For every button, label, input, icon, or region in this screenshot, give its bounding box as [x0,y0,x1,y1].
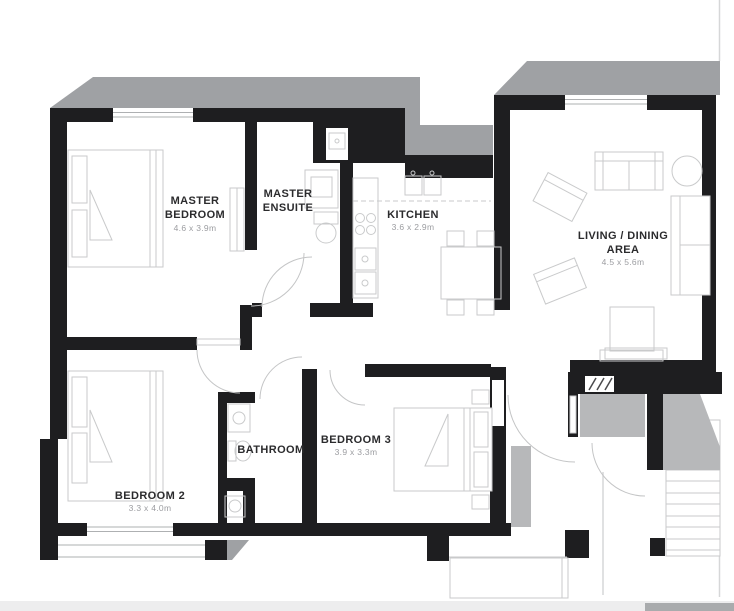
room-label-bathroom: BATHROOM [237,444,304,456]
master-bedroom-name-1: MASTER [171,195,220,207]
kitchen-counter [353,171,491,298]
hall-closet-shade [511,446,531,527]
floor-plan: MASTER BEDROOM 4.6 x 3.9m MASTER ENSUITE… [0,0,734,611]
bedroom-3-dims: 3.9 x 3.3m [335,447,378,457]
bedroom-2-dims: 3.3 x 4.0m [129,503,172,513]
room-label-bedroom-2: BEDROOM 2 3.3 x 4.0m [115,490,185,513]
utility-riser [585,376,614,392]
master-wardrobe [230,188,244,251]
master-ensuite-name-1: MASTER [264,188,313,200]
bedroom-2-door-leaf [197,339,240,345]
dining-table [441,231,501,315]
coffee-table [610,307,654,351]
room-label-bedroom-3: BEDROOM 3 3.9 x 3.3m [321,434,391,457]
balcony-shade [227,540,249,560]
bedroom-3-bed [394,390,492,509]
kitchen-hob [356,214,376,235]
room-label-master-ensuite: MASTER ENSUITE [263,188,313,214]
chaise-sofa [671,196,710,295]
stair-landing-shade [663,394,720,470]
bedroom-2-bed [68,371,163,501]
bottom-band [0,601,734,611]
entry-door-leaf [570,396,576,433]
bedroom-3-terrace [449,557,568,598]
room-label-master-bedroom: MASTER BEDROOM 4.6 x 3.9m [165,195,225,233]
kitchen-dims: 3.6 x 2.9m [392,222,435,232]
bottom-band-dark [645,603,734,611]
entry-lobby-shade [580,394,645,437]
kitchen-appliances [355,248,376,294]
living-area-window [565,95,647,110]
room-label-living-dining: LIVING / DINING AREA 4.5 x 5.6m [578,230,668,267]
bathroom-vanity [228,404,250,432]
floor-plan-page: MASTER BEDROOM 4.6 x 3.9m MASTER ENSUITE… [0,0,734,611]
washing-machine [225,496,245,517]
living-dining-name-2: AREA [607,244,640,256]
master-bed [68,150,163,267]
master-ensuite-name-2: ENSUITE [263,202,313,214]
bedroom-2-balcony [58,545,205,557]
armchair-2 [534,258,587,304]
master-bedroom-window [113,108,193,122]
armchair-1 [533,173,587,222]
kitchen-name: KITCHEN [387,209,439,221]
room-label-kitchen: KITCHEN 3.6 x 2.9m [387,209,439,232]
master-bedroom-dims: 4.6 x 3.9m [174,223,217,233]
bedroom-3-niche [492,380,504,426]
living-dining-name-1: LIVING / DINING [578,230,668,242]
ensuite-toilet [314,212,338,243]
sofa [595,152,663,190]
bedroom-2-name: BEDROOM 2 [115,490,185,502]
living-dining-dims: 4.5 x 5.6m [602,257,645,267]
side-table [672,156,702,186]
bedroom-3-name: BEDROOM 3 [321,434,391,446]
bedroom-2-window [87,523,173,536]
bathroom-name: BATHROOM [237,444,304,456]
master-bedroom-name-2: BEDROOM [165,209,225,221]
ensuite-shower-niche [326,128,348,160]
